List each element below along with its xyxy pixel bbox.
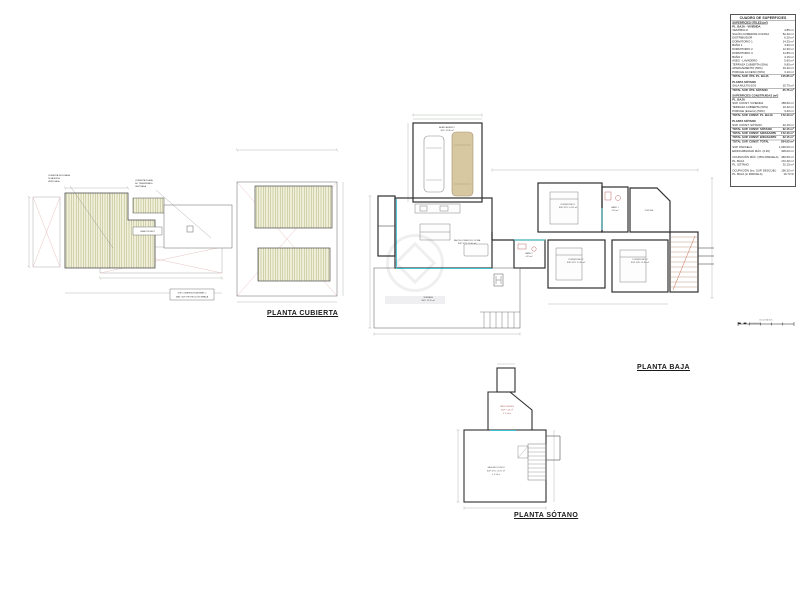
drawing-sheet: CUBIERTA INCLINADA TEJA MIXTA VENTILADA … xyxy=(0,0,800,600)
table-row: TOTAL SUP. CONST. PL. BAJA 172.40 m² xyxy=(731,113,795,117)
label-sala: SALA MULTIUSOS xyxy=(487,466,505,469)
roof-callout-right-line1: CUBIERTA PLANA xyxy=(135,179,153,182)
label-dormitorio2: DORMITORIO 2 xyxy=(569,259,585,261)
roof-callout-left-line3: VENTILADA xyxy=(48,180,60,183)
label-bano2-area: 4.15 m² xyxy=(526,255,533,258)
sotano-stairs xyxy=(518,444,546,480)
table-row: TOTAL SUP. ÚTIL PL. BAJA 145.85 m² xyxy=(731,74,795,78)
table-row-label: TOTAL SUP. ÚTIL SÓTANO xyxy=(732,88,767,92)
basement-plan-drawing: PATIO INGLÉS SUP: 7.35 m² h: 2.50 m SALA… xyxy=(450,360,570,510)
sotano-patio-label: PATIO INGLÉS SUP: 7.35 m² h: 2.50 m xyxy=(500,405,514,415)
table-row-value: 309.00 m² xyxy=(781,150,794,154)
roof-callout-left-line1: CUBIERTA INCLINADA xyxy=(48,174,70,177)
label-sala-height: h: 2.50 m xyxy=(492,474,501,476)
roof-callout-right: CUBIERTA PLANA NO TRANSITABLE LASTRADA xyxy=(135,179,153,188)
sotano-room-label: SALA MULTIUSOS SUP. ÚTIL: 25.75 m² h: 2.… xyxy=(487,466,506,476)
label-dormitorio3: DORMITORIO 3 xyxy=(633,259,649,261)
table-row-label: TOTAL SUP. ÚTIL PL. BAJA xyxy=(732,75,768,79)
label-bano1-area: 4.90 m² xyxy=(612,209,619,212)
table-row-label: TOTAL SUP. CONST. TOTAL xyxy=(732,140,769,144)
table-row-value: 16.73 % xyxy=(784,173,794,177)
label-salon: SALÓN-COMEDOR-COCINA xyxy=(454,239,481,242)
watermark-ring-icon xyxy=(386,234,444,292)
roof-note-line2: MÁX. SUP. PROYECCIÓN TAPADA xyxy=(176,296,209,299)
roof-box-label: CASETÓN INST. xyxy=(133,227,162,235)
watermark-diamond-icon xyxy=(394,242,436,284)
roof-callout-right-line2: NO TRANSITABLE xyxy=(135,182,153,185)
basement-plan-title: PLANTA SÓTANO xyxy=(514,512,578,519)
table-row: PL. BAJA (s/ PARCELA) 16.73 % xyxy=(731,173,795,177)
table-row: EDIFICABILIDAD MÁX. (0.30) 309.00 m² xyxy=(731,150,795,154)
roof-note-line1: SUP. CUBIERTA TEJA PANEL 2 xyxy=(178,292,208,295)
sotano-walls xyxy=(464,368,560,502)
watermark-bar xyxy=(385,296,445,304)
label-dormitorio3-area: SUP. ÚTIL: 11.85 m² xyxy=(631,261,649,264)
label-dormitorio2-area: SUP. ÚTIL: 12.30 m² xyxy=(567,261,586,264)
table-row-value: 32.15 m² xyxy=(783,163,794,167)
label-patio-area: SUP: 7.35 m² xyxy=(501,409,513,412)
table-row-value: 25.75 m² xyxy=(783,88,794,92)
table-row: TOTAL SUP. ÚTIL SÓTANO 25.75 m² xyxy=(731,88,795,92)
table-row: TOTAL SUP. CONST. S/RASANTE 172.40 m² xyxy=(731,131,795,135)
label-bano1: BAÑO 1 xyxy=(611,206,619,209)
table-row-label: EDIFICABILIDAD MÁX. (0.30) xyxy=(732,150,770,154)
roof-box-label-text: CASETÓN INST. xyxy=(140,230,156,233)
roof-callout-left-line2: TEJA MIXTA xyxy=(48,177,60,180)
table-row-value: 204.55 m² xyxy=(781,140,794,144)
table-row-label: PL. BAJA (s/ PARCELA) xyxy=(732,173,762,177)
label-dormitorio1-area: SUP. ÚTIL: 14.25 m² xyxy=(559,206,578,209)
label-bano2: BAÑO 2 xyxy=(525,252,533,255)
table-row-label: PL. SÓTANO xyxy=(732,163,749,167)
table-row-value: 145.85 m² xyxy=(781,75,794,79)
table-row-value: 172.40 m² xyxy=(781,114,794,118)
roof-callout-right-line3: LASTRADA xyxy=(135,185,147,188)
label-dormitorio1: DORMITORIO 1 xyxy=(561,204,577,206)
label-patio: PATIO INGLÉS xyxy=(500,405,514,408)
label-garaje-area: SUP: 32.80 m² xyxy=(440,129,453,132)
roof-plan-title: PLANTA CUBIERTA xyxy=(267,310,338,317)
roof-callout-left: CUBIERTA INCLINADA TEJA MIXTA VENTILADA xyxy=(48,174,70,183)
label-porche: PORCHE xyxy=(645,210,654,212)
label-patio-height: h: 2.50 m xyxy=(503,413,512,415)
table-row: TOTAL SUP. CONST. SÓTANO 32.15 m² xyxy=(731,127,795,131)
roof-note-box: SUP. CUBIERTA TEJA PANEL 2 MÁX. SUP. PRO… xyxy=(170,289,214,300)
watermark xyxy=(381,234,449,308)
roof-plan-drawing: CUBIERTA INCLINADA TEJA MIXTA VENTILADA … xyxy=(15,110,360,325)
sotano-dimension-lines xyxy=(457,364,555,510)
ground-floor-plan-title: PLANTA BAJA xyxy=(637,364,690,371)
surfaces-table: CUADRO DE SUPERFICIES SUPERFICIES ÚTILES… xyxy=(730,14,796,187)
graphic-scale-bar: 0 1 2 3 4 5 m xyxy=(736,315,798,329)
table-row: TOTAL SUP. CONST. B/RASANTE 32.15 m² xyxy=(731,135,795,139)
surfaces-table-rows: SUPERFICIES ÚTILES (m²) PL. BAJA · VIVIE… xyxy=(731,21,795,176)
scale-bar-text: 0 1 2 3 4 5 m xyxy=(760,320,773,322)
label-garaje: APARCAMIENTO xyxy=(439,126,455,129)
label-salon-area: SUP. ÚTIL: 52.40 m² xyxy=(458,242,477,245)
baja-stairs xyxy=(670,236,698,290)
table-row-label: TOTAL SUP. CONST. PL. BAJA xyxy=(732,114,773,118)
baja-cars xyxy=(424,132,473,196)
label-sala-area: SUP. ÚTIL: 25.75 m² xyxy=(487,470,506,473)
table-row: TOTAL SUP. CONST. TOTAL 204.55 m² xyxy=(731,140,795,144)
